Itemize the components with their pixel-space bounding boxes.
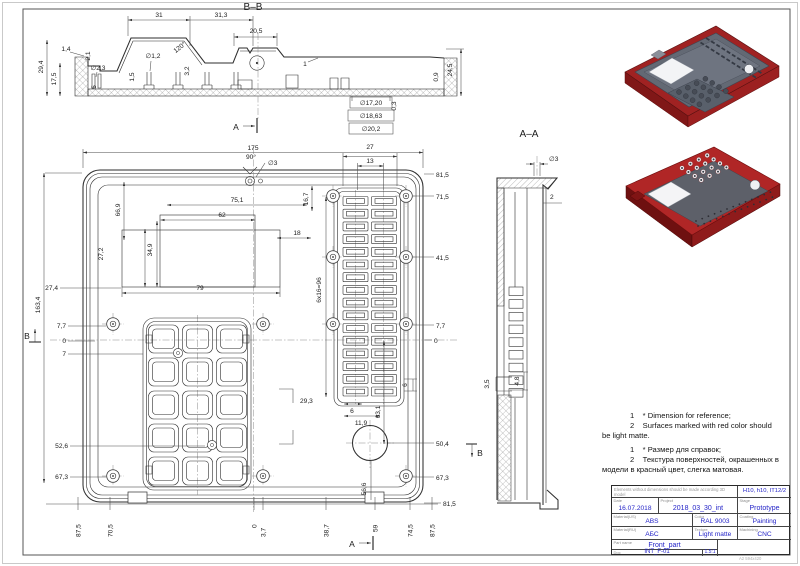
date-cell: Date 16.07.2018 bbox=[612, 497, 658, 513]
dim-w62: 62 bbox=[218, 212, 226, 219]
aa-slot bbox=[509, 363, 523, 372]
top-hole-inner bbox=[248, 179, 252, 183]
dim-r715: 71,5 bbox=[436, 194, 449, 201]
render-vent-dot bbox=[747, 206, 749, 208]
partname-cell: Part name Front_part bbox=[612, 539, 717, 549]
tolerance-cell: H10, h10, IT12/2 bbox=[737, 486, 791, 497]
vent-slot-inner bbox=[375, 300, 393, 305]
render-vent-dot bbox=[722, 216, 724, 218]
dim-dia12: ∅1,2 bbox=[146, 53, 161, 60]
render-vent-dot bbox=[726, 208, 728, 210]
vent-slot-inner bbox=[375, 262, 393, 267]
render-vent-dot bbox=[701, 218, 703, 220]
note-ru-2: 2 Текстура поверхностей, окрашенных в bbox=[602, 455, 792, 465]
render-keypad-hole bbox=[706, 97, 711, 102]
dim-b875r: 87,5 bbox=[430, 524, 437, 537]
render-keypad-hole bbox=[697, 102, 702, 107]
aa-slot bbox=[509, 351, 523, 360]
dim-175s: 17,5 bbox=[51, 72, 58, 85]
render-keypad-hole bbox=[699, 93, 704, 98]
keypad-frame-inner bbox=[147, 322, 248, 487]
material-ru-cell: Material(RU) АБС bbox=[612, 526, 692, 539]
marker-b-right: B bbox=[477, 448, 483, 458]
doc-cell: Doc INT_F-01 bbox=[612, 549, 702, 556]
general-note: Elements without dimensions should be ma… bbox=[612, 486, 737, 497]
machining-value: CNC bbox=[738, 531, 791, 538]
dim-dia23: ∅2,3 bbox=[91, 65, 106, 72]
render-vent-dot bbox=[708, 215, 710, 217]
marker-a-top: A bbox=[233, 122, 239, 132]
dim-31: 31 bbox=[155, 12, 163, 19]
small-boss bbox=[207, 440, 216, 449]
material-value: ABS bbox=[612, 518, 692, 525]
dim-b387: 38,7 bbox=[324, 524, 331, 537]
note-en-2: 2 Surfaces marked with red color should bbox=[602, 421, 792, 431]
dim-s6a: 6 bbox=[402, 383, 409, 387]
render-keypad-hole bbox=[715, 93, 720, 98]
aa-slot bbox=[509, 287, 523, 296]
keypad-key-inner bbox=[153, 461, 175, 481]
machining-cell: Machining CNC bbox=[737, 526, 791, 539]
doc-value: INT_F-01 bbox=[612, 549, 702, 556]
top-hole-2 bbox=[259, 179, 263, 183]
dim-w349: 34,9 bbox=[147, 243, 154, 256]
dim-l7: 7 bbox=[62, 351, 66, 358]
render-keypad-hole bbox=[717, 85, 722, 90]
date-value: 16.07.2018 bbox=[612, 505, 658, 512]
render-keypad-hole bbox=[701, 85, 706, 90]
bb-left-wall bbox=[75, 57, 88, 96]
dim-h167: 16,7 bbox=[303, 192, 310, 205]
render-vent-dot bbox=[739, 203, 741, 205]
dim-90deg: 90° bbox=[246, 153, 256, 161]
render-front-hole bbox=[750, 180, 760, 190]
render-vent-dot bbox=[745, 201, 747, 203]
render-3d-front bbox=[626, 147, 780, 247]
render-keypad-hole bbox=[690, 98, 695, 103]
note-ru-1: 1 * Размер для справок; bbox=[602, 445, 792, 455]
coating-value: Painting bbox=[738, 518, 791, 525]
render-vent-dot bbox=[759, 201, 761, 203]
render-vent-dot bbox=[765, 199, 767, 201]
vent-slot-inner bbox=[375, 288, 393, 293]
dim-b59: 59 bbox=[373, 524, 380, 532]
render-vent-dot bbox=[757, 196, 759, 198]
dim-r504: 50,4 bbox=[436, 441, 449, 448]
drawing-sheet: B–B 31 31,3 20,5 29,4 17,5 1,4 2,1 ∅2,3 … bbox=[0, 0, 800, 566]
notes-block: 1 * Dimension for reference; 2 Surfaces … bbox=[602, 411, 792, 475]
dim-dia202: ∅20,2 bbox=[362, 126, 381, 133]
dim-w669: 66,9 bbox=[115, 203, 122, 216]
keypad-key-inner bbox=[221, 461, 243, 481]
dim-32: 3,2 bbox=[184, 66, 191, 75]
keypad-frame-outer bbox=[143, 318, 251, 490]
color-value: RAL 9003 bbox=[693, 518, 737, 525]
render-vent-dot bbox=[695, 220, 697, 222]
dim-313: 31,3 bbox=[215, 12, 228, 19]
title-block: Elements without dimensions should be ma… bbox=[611, 485, 790, 555]
dim-l526: 52,6 bbox=[55, 443, 68, 450]
aa-wall-xhatch bbox=[498, 395, 511, 501]
dim-r673: 67,3 bbox=[436, 475, 449, 482]
aa-slot bbox=[509, 300, 523, 309]
dim-r0: 0 bbox=[434, 338, 438, 345]
dim-vent-count: 6x16=96 bbox=[316, 277, 323, 303]
aa-slot bbox=[509, 325, 523, 334]
dim-w79: 79 bbox=[196, 285, 204, 292]
scale-value: 1.5:1 bbox=[703, 549, 717, 556]
dim-b37: 3,7 bbox=[261, 528, 268, 537]
sheet-corner-note: A2 594x420 bbox=[739, 556, 761, 561]
vent-slot-inner bbox=[375, 211, 393, 216]
dim-aa-35: 3,5 bbox=[484, 379, 491, 388]
dim-l673: 67,3 bbox=[55, 474, 68, 481]
bb-clip bbox=[144, 72, 154, 89]
dim-245: 24,5 bbox=[447, 63, 454, 76]
dim-l77: 7,7 bbox=[57, 323, 66, 330]
vent-border-outer bbox=[334, 188, 404, 406]
scale-cell: 1.5:1 bbox=[702, 549, 717, 556]
dim-205: 20,5 bbox=[250, 28, 263, 35]
dim-w751: 75,1 bbox=[231, 197, 244, 204]
dim-21: 2,1 bbox=[85, 51, 92, 60]
hidden-corner-marks bbox=[279, 389, 293, 444]
general-note-cell: Elements without dimensions should be ma… bbox=[612, 486, 737, 497]
texture-cell: Texture Light matte bbox=[692, 526, 737, 539]
dim-03: 0,3 bbox=[391, 101, 398, 110]
render-keypad-hole bbox=[685, 85, 690, 90]
section-aa: A–A ∅3 2 3,5 4,8 bbox=[484, 129, 562, 509]
dim-aa-2: 2 bbox=[550, 194, 554, 201]
render-vent-dot bbox=[753, 204, 755, 206]
dim-b745: 74,5 bbox=[408, 524, 415, 537]
top-hole-outer bbox=[245, 176, 254, 185]
dim-b0: 0 bbox=[252, 524, 259, 528]
render-vent-dot bbox=[770, 191, 772, 193]
dim-h631: 63,1 bbox=[375, 405, 382, 418]
project-cell: Project 2018_03_30_int bbox=[658, 497, 737, 513]
dim-h1634: 163,4 bbox=[35, 296, 42, 313]
aa-wall-hatch bbox=[497, 188, 504, 306]
vent-slot-inner bbox=[375, 313, 393, 318]
texture-value: Light matte bbox=[693, 531, 737, 538]
render-vent-dot bbox=[772, 196, 774, 198]
keypad-key-inner bbox=[153, 428, 175, 448]
bottom-notch-left bbox=[128, 492, 147, 503]
render-vent-dot bbox=[714, 213, 716, 215]
dim-w27: 27 bbox=[366, 144, 374, 151]
dim-w13: 13 bbox=[366, 158, 374, 165]
render-vent-dot bbox=[751, 199, 753, 201]
bb-profile bbox=[88, 38, 444, 71]
dim-r815: 81,5 bbox=[436, 172, 449, 179]
render-vent-dot bbox=[703, 223, 705, 225]
render-vent-dot bbox=[720, 211, 722, 213]
tolerance-value: H10, h10, IT12/2 bbox=[738, 488, 791, 495]
keypad-key-inner bbox=[221, 329, 243, 349]
keypad-key-inner bbox=[221, 362, 243, 382]
render-keypad-hole bbox=[708, 89, 713, 94]
front-contour-2 bbox=[87, 174, 420, 499]
small-boss bbox=[173, 348, 182, 357]
render-keypad-hole bbox=[692, 89, 697, 94]
render-vent-dot bbox=[763, 194, 765, 196]
render-keypad-hole bbox=[710, 80, 715, 85]
material-cell: Material(US) ABS bbox=[612, 513, 692, 526]
partname-value: Front_part bbox=[612, 542, 717, 549]
render-keypad-hole bbox=[694, 81, 699, 86]
project-label: Project bbox=[661, 499, 673, 504]
dim-r77: 7,7 bbox=[436, 323, 445, 330]
dim-s6b: 6 bbox=[350, 408, 354, 415]
bb-clip bbox=[231, 72, 241, 89]
marker-b-left: B bbox=[24, 331, 30, 341]
dim-dia1720: ∅17,20 bbox=[360, 100, 383, 107]
dim-aa-48: 4,8 bbox=[514, 376, 521, 385]
dim-294: 29,4 bbox=[38, 60, 45, 73]
dim-dia1863: ∅18,63 bbox=[360, 113, 383, 120]
stage-label: Stage bbox=[740, 499, 750, 504]
keypad-key-inner bbox=[221, 395, 243, 415]
keypad-key-inner bbox=[153, 395, 175, 415]
render-vent-dot bbox=[728, 213, 730, 215]
date-label: Date bbox=[614, 499, 622, 504]
dim-l0: 0 bbox=[62, 338, 66, 345]
display-recess-inner bbox=[160, 215, 255, 287]
display-recess-outer bbox=[122, 230, 280, 287]
render-keypad-hole bbox=[723, 89, 728, 94]
render-vent-dot bbox=[710, 220, 712, 222]
section-aa-title: A–A bbox=[520, 129, 539, 140]
dim-w119: 11,9 bbox=[355, 420, 368, 427]
dim-w18: 18 bbox=[293, 230, 301, 237]
dim-5: 5 bbox=[91, 85, 98, 89]
vent-slot-inner bbox=[375, 237, 393, 242]
note-en-3: be light matte. bbox=[602, 431, 792, 441]
note-ru-3: модели в красный цвет, слегка матовая. bbox=[602, 465, 792, 475]
bb-clips bbox=[144, 72, 241, 89]
section-bb: B–B 31 31,3 20,5 29,4 17,5 1,4 2,1 ∅2,3 … bbox=[38, 2, 464, 134]
dim-120: 120° bbox=[172, 40, 188, 55]
dim-h274: 27,4 bbox=[45, 285, 58, 292]
aa-flange-hatch bbox=[497, 178, 557, 188]
render-3d-back bbox=[625, 26, 779, 127]
bb-clip bbox=[173, 72, 183, 89]
dim-15: 1,5 bbox=[129, 72, 136, 81]
render-keypad-hole bbox=[677, 90, 682, 95]
render-vent-dot bbox=[697, 225, 699, 227]
dim-b705: 70,5 bbox=[108, 524, 115, 537]
render-vent-dot bbox=[734, 211, 736, 213]
dim-dia3: ∅3 bbox=[268, 160, 278, 167]
dim-aa-dia3: ∅3 bbox=[549, 156, 559, 163]
dim-w272: 27,2 bbox=[98, 247, 105, 260]
render-vent-dot bbox=[716, 218, 718, 220]
aa-slot bbox=[509, 312, 523, 321]
dim-r415: 41,5 bbox=[436, 255, 449, 262]
keypad-key-inner bbox=[153, 362, 175, 382]
coating-cell: Coating Painting bbox=[737, 513, 791, 526]
render-keypad-hole bbox=[703, 76, 708, 81]
render-keypad-hole bbox=[683, 94, 688, 99]
note-en-1: 1 * Dimension for reference; bbox=[602, 411, 792, 421]
dim-w293: 29,3 bbox=[300, 398, 313, 405]
render-vent-dot bbox=[732, 206, 734, 208]
section-bb-title: B–B bbox=[244, 2, 263, 13]
dim-r815b: 81,5 bbox=[443, 501, 456, 508]
dim-09: 0,9 bbox=[433, 72, 440, 81]
bb-base-strip bbox=[88, 89, 444, 96]
vent-slot-inner bbox=[375, 275, 393, 280]
vent-slot-inner bbox=[375, 199, 393, 204]
marker-a-bottom: A bbox=[349, 539, 355, 549]
empty-cell bbox=[717, 539, 791, 556]
dim-h566: 56,6 bbox=[361, 482, 368, 495]
vent-slot-inner bbox=[375, 224, 393, 229]
material-ru-value: АБС bbox=[612, 531, 692, 538]
stage-cell: Stage Prototype bbox=[737, 497, 791, 513]
dim-14: 1,4 bbox=[61, 46, 70, 53]
render-back-hole bbox=[744, 64, 753, 73]
front-view: 175 90° ∅3 27 13 16,7 75,1 62 18 66,9 27… bbox=[24, 144, 512, 550]
aa-slot bbox=[509, 338, 523, 347]
stage-value: Prototype bbox=[738, 505, 791, 512]
vent-slot-inner bbox=[375, 250, 393, 255]
color-cell: Color RAL 9003 bbox=[692, 513, 737, 526]
dim-w175: 175 bbox=[247, 145, 258, 152]
vent-slot-inner bbox=[375, 326, 393, 331]
dim-1: 1 bbox=[303, 61, 307, 68]
left-leaders bbox=[60, 288, 205, 477]
vent-slot-grid bbox=[343, 197, 397, 397]
render-vent-dot bbox=[741, 208, 743, 210]
bb-clip bbox=[202, 72, 212, 89]
keypad-key-inner bbox=[153, 329, 175, 349]
dim-b875l: 87,5 bbox=[76, 524, 83, 537]
bb-ext-lines bbox=[70, 16, 464, 101]
project-value: 2018_03_30_int bbox=[659, 505, 737, 512]
keypad-key-inner bbox=[221, 428, 243, 448]
